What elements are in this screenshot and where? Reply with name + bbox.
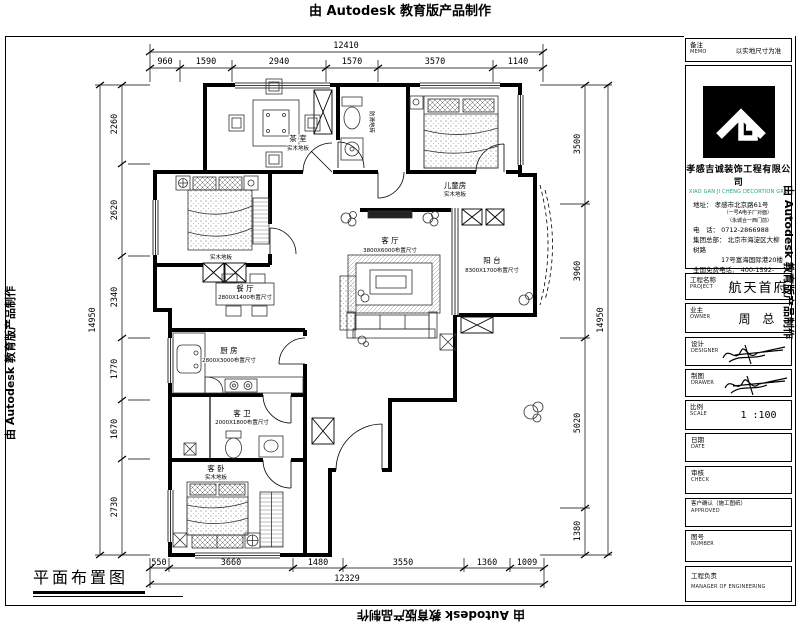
scale-value: 1 :100 <box>726 410 791 421</box>
company-block: 孝感吉诚装饰工程有限公司 XIAO GAN JI CHENG DECORTION… <box>685 65 792 269</box>
number-row: 图号 NUMBER <box>685 530 792 562</box>
approved-row: 客户确认（施工图纸） APPROVED <box>685 498 792 527</box>
date-row: 日期 DATE <box>685 433 792 462</box>
designer-signature <box>717 340 789 366</box>
drawing-sheet: 12410 960 1590 2940 1570 3570 1140 14950… <box>0 0 800 640</box>
watermark-left: 由 Autodesk 教育版产品制作 <box>2 225 18 440</box>
company-logo <box>703 86 775 158</box>
manager-row: 工程负责 MANAGER OF ENGINEERING <box>685 566 792 602</box>
watermark-right: 由 Autodesk 教育版产品制作 <box>781 185 797 400</box>
project-row: 工程名称 PROJECT 航天首府 <box>685 273 792 300</box>
designer-row: 设计 DESIGNER <box>685 337 792 366</box>
memo-row: 备注 MEMO 以实地尺寸为准 <box>685 38 792 62</box>
drawing-title: 平面布置图 <box>33 564 183 597</box>
title-underline <box>33 591 145 594</box>
check-row: 审核 CHECK <box>685 466 792 494</box>
owner-row: 业主 OWNER 周 总 <box>685 303 792 333</box>
company-name-en: XIAO GAN JI CHENG DECORTION GRO <box>686 189 791 195</box>
drawer-signature <box>717 372 789 398</box>
company-address: 地址： 孝感市北京路61号 （一号A电子厂对面） （永城合一西门前） 电 话： … <box>686 195 791 285</box>
title-block: 备注 MEMO 以实地尺寸为准 孝感吉诚装饰工程有限公司 XIAO GAN JI… <box>684 36 795 604</box>
company-name: 孝感吉诚装饰工程有限公司 <box>686 162 791 188</box>
scale-row: 比例 SCALE 1 :100 <box>685 400 792 430</box>
memo-value: 以实地尺寸为准 <box>726 45 791 55</box>
drawer-row: 制图 DRAWER <box>685 369 792 397</box>
watermark-top: 由 Autodesk 教育版产品制作 <box>0 0 800 19</box>
sheet-border <box>5 36 796 606</box>
memo-label: 备注 <box>690 41 726 49</box>
watermark-bottom: 由 Autodesk 教育版产品制作 <box>295 607 525 624</box>
company-phone: 电 话： 0712-2866988 <box>693 225 786 235</box>
